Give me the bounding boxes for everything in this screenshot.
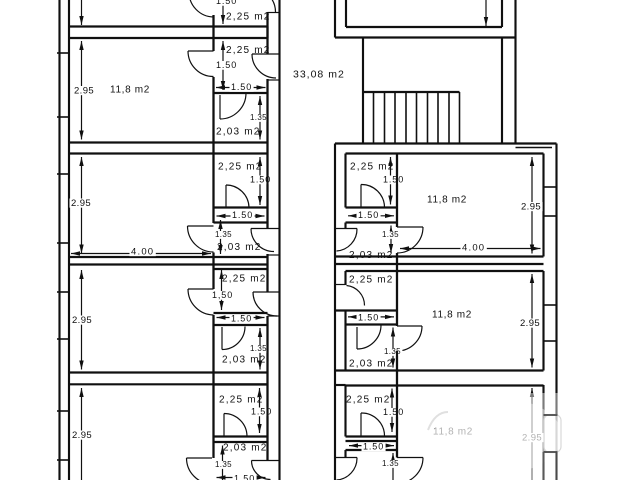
svg-text:11,8 m2: 11,8 m2 <box>432 310 472 321</box>
svg-text:2.95: 2.95 <box>74 85 94 96</box>
svg-text:1.35: 1.35 <box>382 230 399 239</box>
svg-text:2,25 m2: 2,25 m2 <box>226 12 271 23</box>
svg-text:1.50: 1.50 <box>231 82 252 92</box>
svg-text:1.35: 1.35 <box>250 344 267 353</box>
svg-text:1.50: 1.50 <box>383 407 404 417</box>
svg-text:1.35: 1.35 <box>384 347 401 356</box>
svg-text:1,50: 1,50 <box>212 290 233 300</box>
svg-text:2,25 m2: 2,25 m2 <box>222 274 267 285</box>
svg-text:2,25 m2: 2,25 m2 <box>218 162 263 173</box>
svg-text:33,08 m2: 33,08 m2 <box>293 69 345 81</box>
svg-text:4.00: 4.00 <box>462 242 485 253</box>
svg-text:1.35: 1.35 <box>215 460 232 469</box>
svg-text:1.50: 1.50 <box>232 210 253 220</box>
svg-text:2,03 m2: 2,03 m2 <box>222 355 267 366</box>
svg-text:1.50: 1.50 <box>363 441 384 451</box>
svg-text:2,25 m2: 2,25 m2 <box>226 45 271 56</box>
svg-text:2,03 m2: 2,03 m2 <box>217 242 262 253</box>
svg-text:1.35: 1.35 <box>215 230 232 239</box>
svg-text:2.95: 2.95 <box>71 198 91 209</box>
svg-text:2,03 m2: 2,03 m2 <box>223 443 268 454</box>
svg-text:1.35: 1.35 <box>382 459 399 468</box>
svg-text:2,25 m2: 2,25 m2 <box>219 395 264 406</box>
svg-text:2.95: 2.95 <box>521 201 541 212</box>
svg-text:1.50: 1.50 <box>231 313 252 323</box>
svg-text:2.95: 2.95 <box>72 430 92 441</box>
svg-text:1.50: 1.50 <box>383 174 404 184</box>
svg-text:2,25 m2: 2,25 m2 <box>350 162 395 173</box>
svg-text:1.35: 1.35 <box>250 113 267 122</box>
svg-text:4.00: 4.00 <box>131 246 154 257</box>
svg-text:1.50: 1.50 <box>358 210 379 220</box>
svg-text:2,25 m2: 2,25 m2 <box>346 395 391 406</box>
svg-text:2,03 m2: 2,03 m2 <box>349 359 394 370</box>
svg-text:2,03 m2: 2,03 m2 <box>216 127 261 138</box>
svg-text:1.50: 1.50 <box>251 406 272 416</box>
svg-text:1.50: 1.50 <box>234 473 255 480</box>
svg-text:1.50: 1.50 <box>216 60 237 70</box>
svg-text:2,03 m2: 2,03 m2 <box>349 250 394 261</box>
svg-text:1.50: 1.50 <box>358 312 379 322</box>
svg-text:11,8 m2: 11,8 m2 <box>110 85 150 96</box>
svg-text:2.95: 2.95 <box>72 315 92 326</box>
svg-text:1.50: 1.50 <box>216 0 237 6</box>
svg-text:11,8 m2: 11,8 m2 <box>427 195 467 206</box>
svg-text:2,25 m2: 2,25 m2 <box>349 275 394 286</box>
svg-text:2.95: 2.95 <box>520 318 540 329</box>
